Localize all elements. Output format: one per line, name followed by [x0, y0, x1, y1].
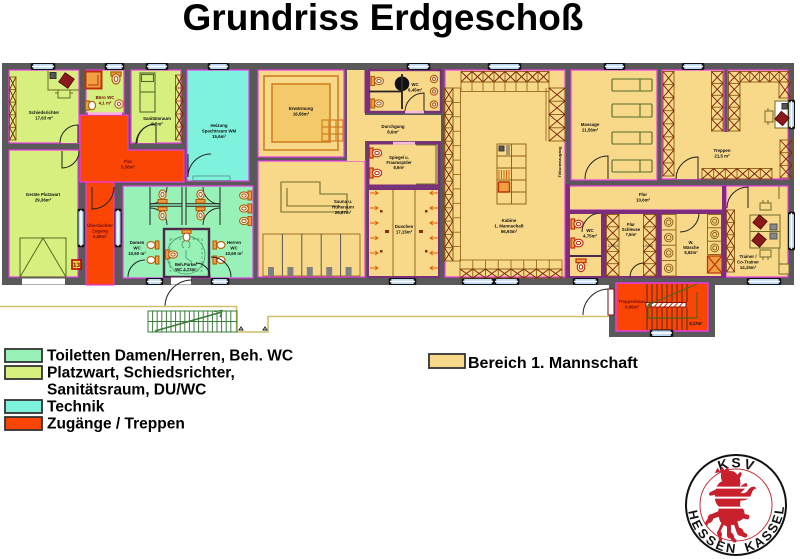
svg-text:Duschen: Duschen [395, 224, 414, 229]
svg-text:1,0x2,0: 1,0x2,0 [608, 244, 619, 248]
svg-text:10,6m²: 10,6m² [636, 198, 650, 203]
svg-text:17,15m²: 17,15m² [396, 230, 413, 235]
svg-text:21,56m²: 21,56m² [582, 128, 599, 133]
svg-text:Technik: Technik [47, 399, 105, 416]
svg-text:WC: WC [133, 246, 141, 251]
svg-text:17,63 m²: 17,63 m² [35, 116, 53, 121]
svg-text:8,6m²: 8,6m² [387, 130, 399, 135]
svg-text:Heizung: Heizung [210, 123, 227, 128]
svg-text:Grundriss Erdgeschoß: Grundriss Erdgeschoß [183, 0, 584, 38]
svg-text:7,6m²: 7,6m² [626, 232, 638, 237]
svg-text:Damen: Damen [130, 240, 145, 245]
svg-text:Bereich 1. Mannschaft: Bereich 1. Mannschaft [468, 355, 639, 372]
svg-text:9,7m²: 9,7m² [151, 122, 163, 127]
svg-text:6,45m²: 6,45m² [408, 88, 422, 93]
svg-text:Ruheraum: Ruheraum [332, 205, 354, 210]
svg-text:Treppen: Treppen [713, 148, 730, 153]
svg-text:Treppenhaus: Treppenhaus [618, 299, 646, 304]
svg-text:1,0x2,0: 1,0x2,0 [643, 244, 654, 248]
svg-text:10,60 m²: 10,60 m² [128, 251, 146, 256]
svg-text:4,1 m²: 4,1 m² [99, 101, 112, 106]
svg-text:26,87m²: 26,87m² [335, 210, 352, 215]
svg-text:Durchgang: Durchgang [381, 124, 404, 129]
svg-text:Sauna u.: Sauna u. [334, 199, 352, 204]
svg-text:5,56m²: 5,56m² [93, 234, 107, 239]
svg-text:Herren: Herren [227, 240, 241, 245]
svg-text:8,62m²: 8,62m² [684, 250, 698, 255]
svg-text:Platzwart, Schiedsrichter,: Platzwart, Schiedsrichter, [47, 365, 235, 382]
svg-text:Spachtraum WM: Spachtraum WM [202, 129, 237, 134]
svg-text:21,5 m²: 21,5 m² [714, 154, 730, 159]
svg-text:4,75m²: 4,75m² [583, 234, 597, 239]
svg-text:Kabine: Kabine [502, 218, 517, 223]
svg-text:Co-Trainer: Co-Trainer [737, 260, 759, 265]
svg-text:Zugang: Zugang [92, 229, 108, 234]
svg-text:8,17m²: 8,17m² [689, 321, 703, 326]
svg-text:Flur: Flur [124, 159, 133, 164]
svg-text:29,36m²: 29,36m² [35, 198, 52, 203]
svg-text:10,60 m²: 10,60 m² [225, 251, 243, 256]
svg-text:9,06m²: 9,06m² [625, 305, 639, 310]
svg-text:Sanitätsraum: Sanitätsraum [143, 116, 171, 121]
svg-text:Büro WC: Büro WC [96, 95, 116, 100]
svg-text:56,93m²: 56,93m² [501, 229, 518, 234]
svg-text:Schiedsrichter: Schiedsrichter [29, 110, 60, 115]
svg-text:15,6m²: 15,6m² [212, 134, 226, 139]
svg-text:S: S [731, 455, 740, 471]
svg-text:Erwärmung: Erwärmung [289, 106, 313, 111]
svg-text:Geräte Platzwart: Geräte Platzwart [26, 192, 61, 197]
svg-text:8,6m²: 8,6m² [394, 165, 406, 170]
svg-text:Tribunenzugang: Tribunenzugang [557, 146, 562, 177]
svg-text:Zugänge / Treppen: Zugänge / Treppen [47, 416, 185, 433]
svg-text:WC: WC [586, 228, 594, 233]
svg-text:13: 13 [73, 262, 81, 269]
svg-text:14,15m²: 14,15m² [740, 265, 757, 270]
svg-text:Sanitätsraum, DU/WC: Sanitätsraum, DU/WC [47, 382, 206, 399]
svg-text:Toiletten Damen/Herren, Beh. W: Toiletten Damen/Herren, Beh. WC [47, 348, 293, 365]
svg-text:1. Mannschaft: 1. Mannschaft [494, 224, 524, 229]
svg-text:WC: WC [230, 246, 238, 251]
svg-text:5,56m²: 5,56m² [121, 165, 135, 170]
svg-text:Trainer /: Trainer / [739, 254, 757, 259]
svg-text:Überdachter: Überdachter [87, 223, 113, 228]
svg-text:Flur: Flur [639, 192, 648, 197]
svg-text:Massage: Massage [581, 122, 600, 127]
svg-text:16,56m²: 16,56m² [293, 112, 310, 117]
svg-text:WC: WC [411, 82, 419, 87]
svg-text:WC 4,73m²: WC 4,73m² [175, 267, 197, 272]
